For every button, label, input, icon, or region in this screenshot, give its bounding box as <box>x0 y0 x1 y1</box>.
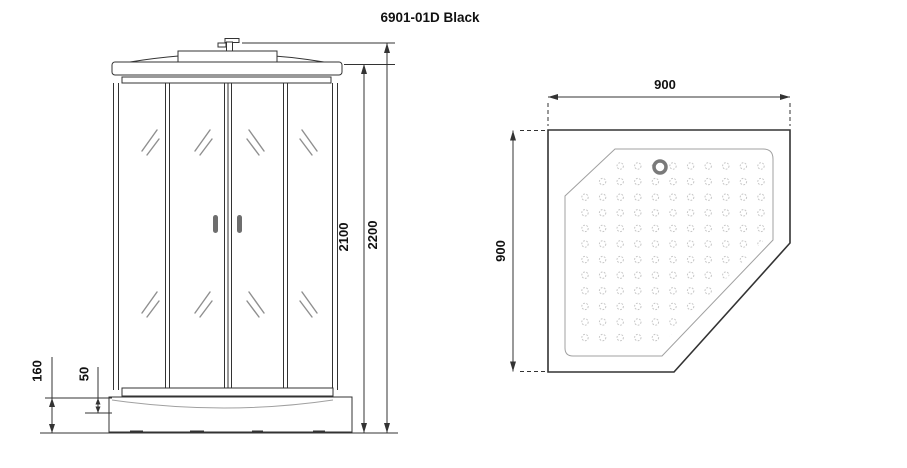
arrowhead <box>361 64 367 74</box>
top-fixture-stem <box>227 42 233 51</box>
arrowhead <box>49 398 55 407</box>
frame-posts <box>114 83 338 390</box>
dim-tray-depth-top: 900 <box>493 240 508 262</box>
dim-tray-depth: 50 <box>77 367 92 381</box>
door-handle-left <box>213 215 218 233</box>
arrowhead <box>49 424 55 433</box>
front-view-dimensions: 2100 2200 160 50 <box>30 43 399 433</box>
technical-drawing-canvas: 2100 2200 160 50 900 900 <box>0 0 907 468</box>
dim-tray-width: 900 <box>654 77 676 92</box>
tray-outline-outer <box>548 130 790 372</box>
arrowhead <box>548 94 558 100</box>
arrowhead <box>96 398 101 405</box>
arrowhead <box>361 423 367 433</box>
top-view-drawing <box>548 130 790 372</box>
arrowhead <box>510 362 516 372</box>
door-handle-right <box>237 215 242 233</box>
arrowhead <box>384 423 390 433</box>
glass-hatch-marks <box>142 130 317 317</box>
dim-tray-height: 160 <box>30 360 45 382</box>
arrowhead <box>384 43 390 53</box>
roof-band <box>112 62 342 75</box>
arrowhead <box>510 131 516 141</box>
roof-vent-box <box>178 51 277 62</box>
drain-hole <box>654 161 666 173</box>
front-view-drawing <box>109 39 352 434</box>
dim-cabin-height: 2100 <box>336 223 351 252</box>
top-fixture-nozzle <box>218 43 226 47</box>
arrowhead <box>96 407 101 414</box>
top-rail <box>122 77 331 83</box>
dim-total-height: 2200 <box>365 221 380 250</box>
arrowhead <box>780 94 790 100</box>
bottom-rail <box>122 388 333 396</box>
